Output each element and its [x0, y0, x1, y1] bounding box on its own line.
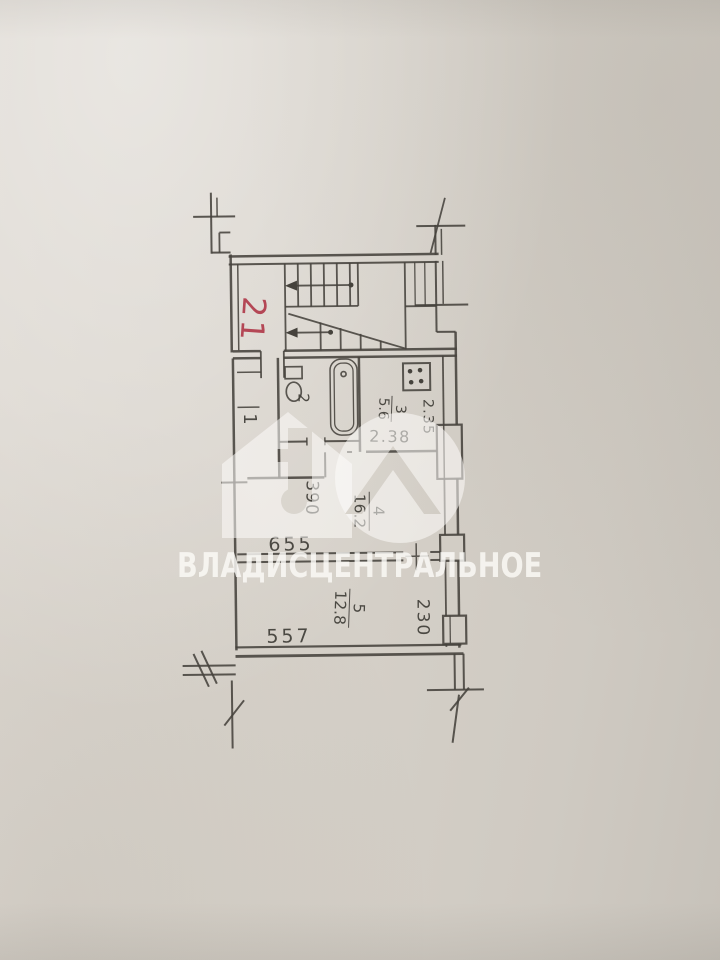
watermark-logo: [0, 0, 720, 960]
floorplan-photo: 21 1 2 3 5.6 2.38 2.35 390 4 16.2 655 5 …: [0, 0, 720, 960]
watermark-text: ВЛАДИСЦЕНТРАЛЬНОЕ: [177, 546, 542, 586]
watermark-house-icon: [222, 412, 352, 538]
watermark-circle-icon: [335, 413, 465, 543]
